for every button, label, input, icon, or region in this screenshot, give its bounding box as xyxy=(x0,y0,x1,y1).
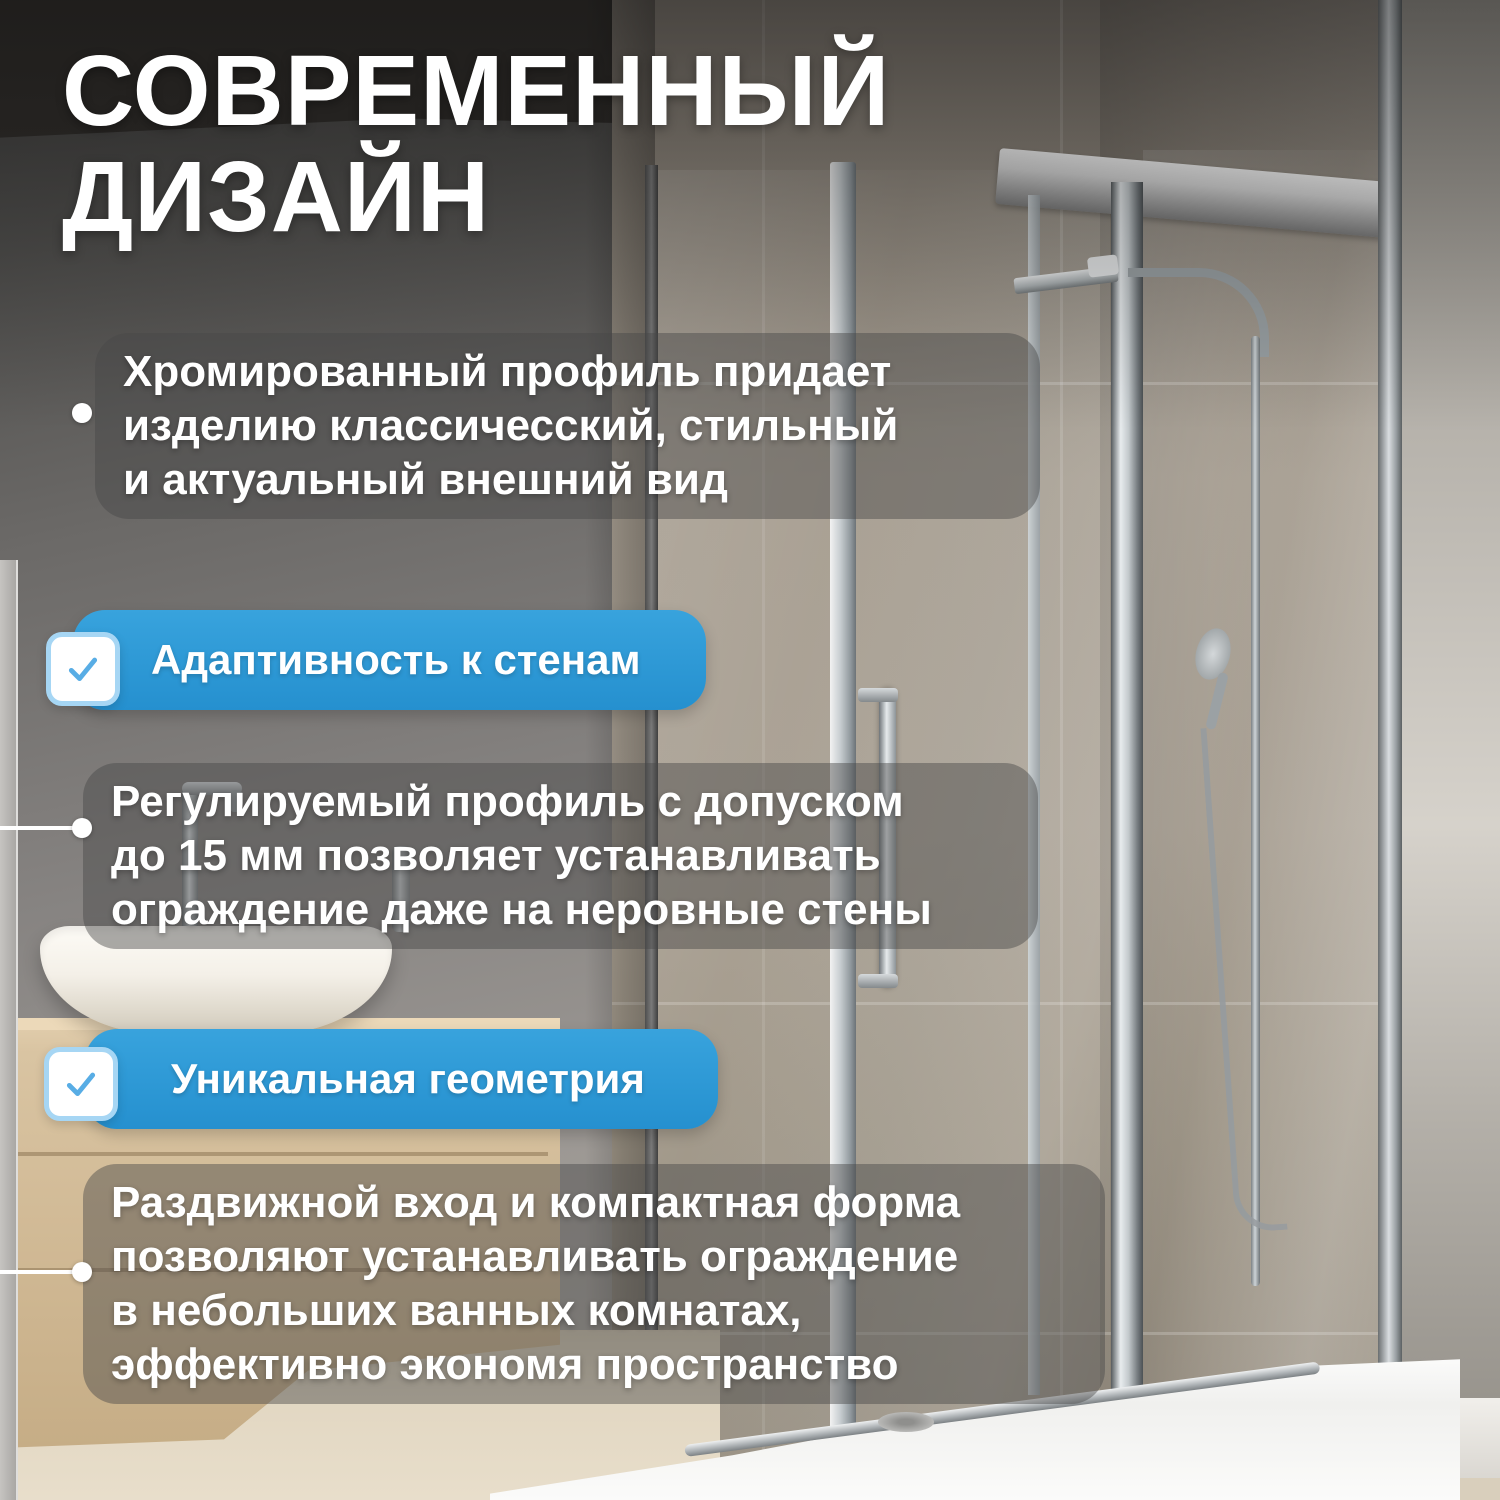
feature-banner-wall-adaptivity: Адаптивность к стенам xyxy=(73,610,706,710)
feature-paragraph-sliding-entry: Раздвижной вход и компактная форма позво… xyxy=(83,1164,1105,1404)
checkmark-glyph xyxy=(61,647,105,691)
feature-banner-unique-geometry: Уникальная геометрия xyxy=(85,1029,718,1129)
checkbox-check-icon xyxy=(44,1047,118,1121)
callout-line xyxy=(0,1270,76,1274)
callout-line xyxy=(0,826,76,830)
checkmark-glyph xyxy=(59,1062,103,1106)
checkbox-check-icon xyxy=(46,632,120,706)
banner-label: Уникальная геометрия xyxy=(171,1055,645,1103)
feature-paragraph-chrome-profile: Хромированный профиль придает изделию кл… xyxy=(95,333,1040,519)
bullet-dot xyxy=(72,1262,92,1282)
bullet-dot xyxy=(72,818,92,838)
feature-paragraph-adjustable-profile: Регулируемый профиль с допуском до 15 мм… xyxy=(83,763,1038,949)
vanity-drawer-seam xyxy=(0,1152,548,1156)
page-title: СОВРЕМЕННЫЙ ДИЗАЙН xyxy=(62,38,890,250)
banner-label: Адаптивность к стенам xyxy=(151,636,641,684)
door-handle-mount xyxy=(858,688,898,702)
page-title-line2: ДИЗАЙН xyxy=(62,144,890,250)
tray-drain xyxy=(878,1412,934,1432)
bullet-dot xyxy=(72,403,92,423)
product-card: СОВРЕМЕННЫЙ ДИЗАЙН Хромированный профиль… xyxy=(0,0,1500,1500)
left-wall-edge xyxy=(0,560,18,1500)
door-handle-mount xyxy=(858,974,898,988)
page-title-line1: СОВРЕМЕННЫЙ xyxy=(62,38,890,144)
